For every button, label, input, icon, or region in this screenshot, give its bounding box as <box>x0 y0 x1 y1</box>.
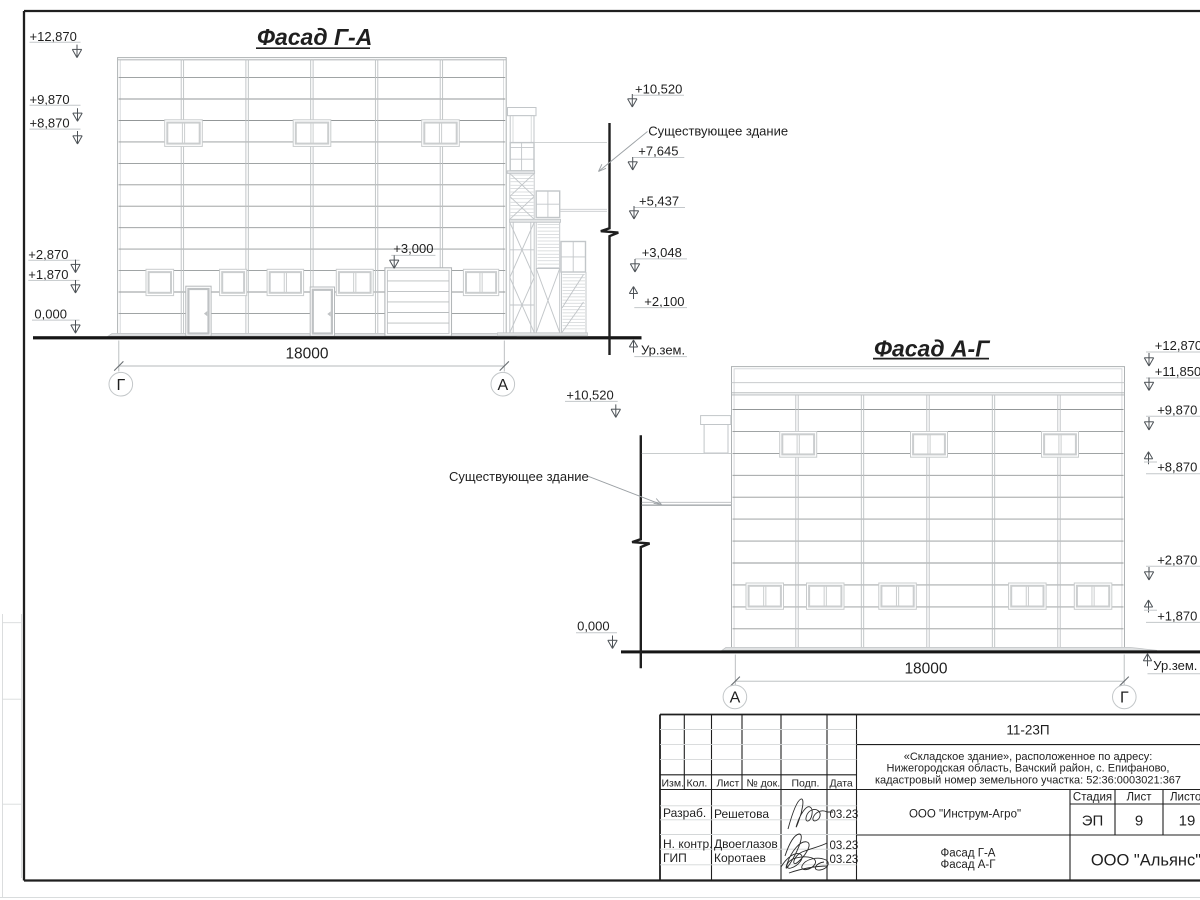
svg-text:+8,870: +8,870 <box>1157 460 1197 475</box>
svg-text:+3,000: +3,000 <box>393 241 433 256</box>
svg-text:18000: 18000 <box>904 661 947 678</box>
svg-text:03.23: 03.23 <box>830 809 859 821</box>
svg-text:+10,520: +10,520 <box>566 387 613 402</box>
svg-text:Существующее здание: Существующее здание <box>449 469 589 484</box>
svg-text:Фасад Г-А: Фасад Г-А <box>257 24 372 50</box>
svg-text:9: 9 <box>1135 813 1143 830</box>
svg-text:+2,870: +2,870 <box>1157 552 1197 567</box>
svg-text:Коротаев: Коротаев <box>714 851 766 865</box>
svg-text:Разраб.: Разраб. <box>663 806 706 820</box>
svg-text:А: А <box>730 690 741 707</box>
svg-text:№ док.: № док. <box>747 778 781 790</box>
svg-text:Лист: Лист <box>717 778 740 790</box>
svg-text:Решетова: Решетова <box>714 807 769 821</box>
svg-text:Нижегородская область, Вачский: Нижегородская область, Вачский район, с.… <box>887 763 1170 775</box>
svg-text:Г: Г <box>116 377 125 394</box>
svg-text:Ур.зем.: Ур.зем. <box>641 343 685 358</box>
svg-text:+5,437: +5,437 <box>639 194 679 209</box>
svg-text:Листов: Листов <box>1170 792 1200 804</box>
svg-text:+9,870: +9,870 <box>30 92 70 107</box>
svg-text:+1,870: +1,870 <box>1157 608 1197 623</box>
svg-text:«Складское здание», расположен: «Складское здание», расположенное по адр… <box>904 751 1153 763</box>
svg-text:03.23: 03.23 <box>830 854 859 866</box>
svg-text:Н. контр.: Н. контр. <box>663 837 713 851</box>
svg-text:Лист: Лист <box>1127 792 1153 804</box>
svg-text:А: А <box>497 377 508 394</box>
svg-text:Подп.: Подп. <box>792 778 820 790</box>
svg-text:+1,870: +1,870 <box>28 267 68 282</box>
svg-text:+11,850: +11,850 <box>1155 364 1200 379</box>
svg-text:+2,870: +2,870 <box>28 247 68 262</box>
svg-text:+12,870: +12,870 <box>30 29 77 44</box>
svg-text:+12,870: +12,870 <box>1155 338 1200 353</box>
svg-text:Двоеглазов: Двоеглазов <box>714 837 778 851</box>
svg-text:ЭП: ЭП <box>1082 813 1104 830</box>
svg-text:ГИП: ГИП <box>663 851 687 865</box>
svg-text:19: 19 <box>1179 813 1196 830</box>
svg-text:ООО "Альянс": ООО "Альянс" <box>1091 852 1200 870</box>
svg-text:Стадия: Стадия <box>1073 792 1112 804</box>
svg-text:03.23: 03.23 <box>830 840 859 852</box>
svg-text:Фасад Г-А: Фасад Г-А <box>941 848 996 860</box>
svg-text:+2,100: +2,100 <box>644 294 684 309</box>
svg-text:+7,645: +7,645 <box>638 144 678 159</box>
svg-text:0,000: 0,000 <box>34 307 67 322</box>
svg-text:11-23П: 11-23П <box>1006 723 1049 738</box>
svg-text:18000: 18000 <box>285 346 328 363</box>
svg-text:Фасад А-Г: Фасад А-Г <box>874 336 990 362</box>
svg-text:0,000: 0,000 <box>577 619 610 634</box>
svg-text:Изм.: Изм. <box>662 778 685 790</box>
svg-text:Фасад А-Г: Фасад А-Г <box>941 859 997 871</box>
svg-text:Ур.зем.: Ур.зем. <box>1153 658 1197 673</box>
svg-text:Кол.: Кол. <box>687 778 708 790</box>
svg-text:+9,870: +9,870 <box>1157 402 1197 417</box>
svg-text:+8,870: +8,870 <box>30 116 70 131</box>
svg-text:Существующее здание: Существующее здание <box>648 124 788 139</box>
svg-text:ООО "Инструм-Агро": ООО "Инструм-Агро" <box>909 809 1021 821</box>
svg-text:+3,048: +3,048 <box>642 245 682 260</box>
svg-text:Дата: Дата <box>830 778 853 790</box>
svg-text:+10,520: +10,520 <box>635 81 682 96</box>
svg-text:кадастровый номер земельного у: кадастровый номер земельного участка: 52… <box>875 775 1181 787</box>
svg-text:Г: Г <box>1120 690 1129 707</box>
